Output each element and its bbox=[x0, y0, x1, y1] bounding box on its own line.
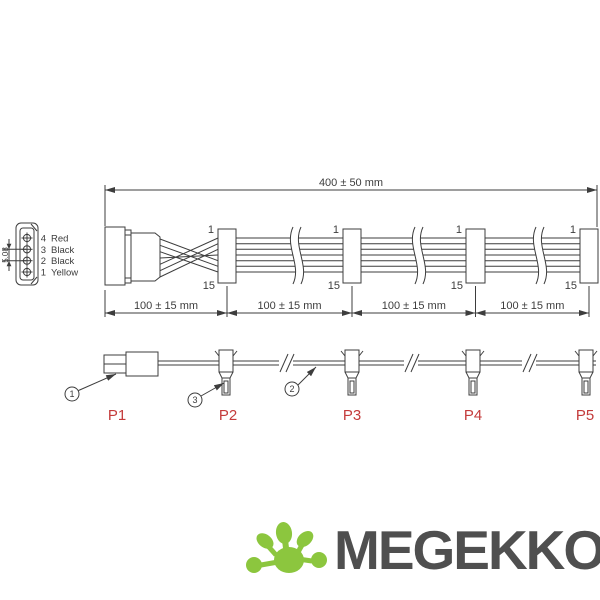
fan-connector-top-4 bbox=[580, 229, 598, 283]
pin15-marker-4: 15 bbox=[565, 280, 577, 292]
wire-fanout bbox=[160, 238, 218, 277]
cable-technical-drawing: 400 ± 50 mm 4 Red 3 Black 2 Black 1 Yell… bbox=[0, 0, 600, 460]
overall-length-label: 400 ± 50 mm bbox=[319, 177, 383, 189]
fan-connector-side-4 bbox=[575, 350, 597, 395]
molex-side-view bbox=[104, 352, 158, 376]
fan-connectors-side-view bbox=[215, 350, 597, 395]
segment-dim-2: 100 ± 15 mm bbox=[257, 300, 321, 312]
callout-cable: 2 bbox=[285, 367, 316, 396]
pin-pitch-label: 5.08 bbox=[1, 247, 10, 263]
megekko-logo: MEGEKKO bbox=[244, 508, 600, 592]
cable-break-side-view bbox=[279, 354, 537, 372]
pin1-marker-1: 1 bbox=[208, 224, 214, 236]
fan-connector-top-1 bbox=[218, 229, 236, 283]
ribbon-cable bbox=[236, 238, 580, 272]
pin2-number: 2 bbox=[41, 256, 46, 267]
molex-front-view: 4 Red 3 Black 2 Black 1 Yellow 5.08 bbox=[1, 223, 78, 285]
fan-connector-side-3 bbox=[462, 350, 484, 395]
megekko-logo-text: MEGEKKO bbox=[334, 523, 600, 578]
pin1-marker-3: 1 bbox=[456, 224, 462, 236]
callout-molex: 1 bbox=[65, 374, 116, 401]
product-diagram-image: 400 ± 50 mm 4 Red 3 Black 2 Black 1 Yell… bbox=[0, 0, 600, 600]
molex-pin-labels: 4 Red 3 Black 2 Black 1 Yellow bbox=[41, 234, 79, 279]
port-label-p4: P4 bbox=[464, 407, 482, 424]
callout-molex-number: 1 bbox=[69, 389, 74, 399]
segment-dim-4: 100 ± 15 mm bbox=[500, 300, 564, 312]
segment-dimensions: 100 ± 15 mm 100 ± 15 mm 100 ± 15 mm 100 … bbox=[105, 286, 589, 317]
port-label-p5: P5 bbox=[576, 407, 594, 424]
pin15-marker-2: 15 bbox=[328, 280, 340, 292]
pin3-number: 3 bbox=[41, 245, 46, 256]
fan-connector-side-1 bbox=[215, 350, 237, 395]
overall-length-dimension: 400 ± 50 mm bbox=[105, 177, 597, 227]
callout-cable-number: 2 bbox=[289, 384, 294, 394]
pin2-wire-color: Black bbox=[51, 256, 74, 267]
pin3-wire-color: Black bbox=[51, 245, 74, 256]
callout-fan-connector: 3 bbox=[188, 383, 224, 407]
pin1-number: 1 bbox=[41, 268, 46, 279]
port-label-p2: P2 bbox=[219, 407, 237, 424]
port-label-p3: P3 bbox=[343, 407, 361, 424]
pin4-number: 4 bbox=[41, 234, 46, 245]
port-label-p1: P1 bbox=[108, 407, 126, 424]
side-view: 1 3 2 P1 P2 P3 P4 P5 bbox=[65, 350, 597, 424]
port-labels: P1 P2 P3 P4 P5 bbox=[108, 407, 594, 424]
molex-top-view bbox=[105, 227, 160, 285]
pin1-marker-4: 1 bbox=[570, 224, 576, 236]
pin1-wire-color: Yellow bbox=[51, 268, 78, 279]
pin15-marker-3: 15 bbox=[451, 280, 463, 292]
callout-fan-number: 3 bbox=[192, 395, 197, 405]
pin1-marker-2: 1 bbox=[333, 224, 339, 236]
fan-connector-top-3 bbox=[466, 229, 485, 283]
megekko-gecko-foot-icon bbox=[244, 518, 328, 582]
fan-connector-top-2 bbox=[343, 229, 361, 283]
segment-dim-3: 100 ± 15 mm bbox=[382, 300, 446, 312]
pin15-marker-1: 15 bbox=[203, 280, 215, 292]
pin4-wire-color: Red bbox=[51, 234, 68, 245]
segment-dim-1: 100 ± 15 mm bbox=[134, 300, 198, 312]
fan-connector-side-2 bbox=[341, 350, 363, 395]
